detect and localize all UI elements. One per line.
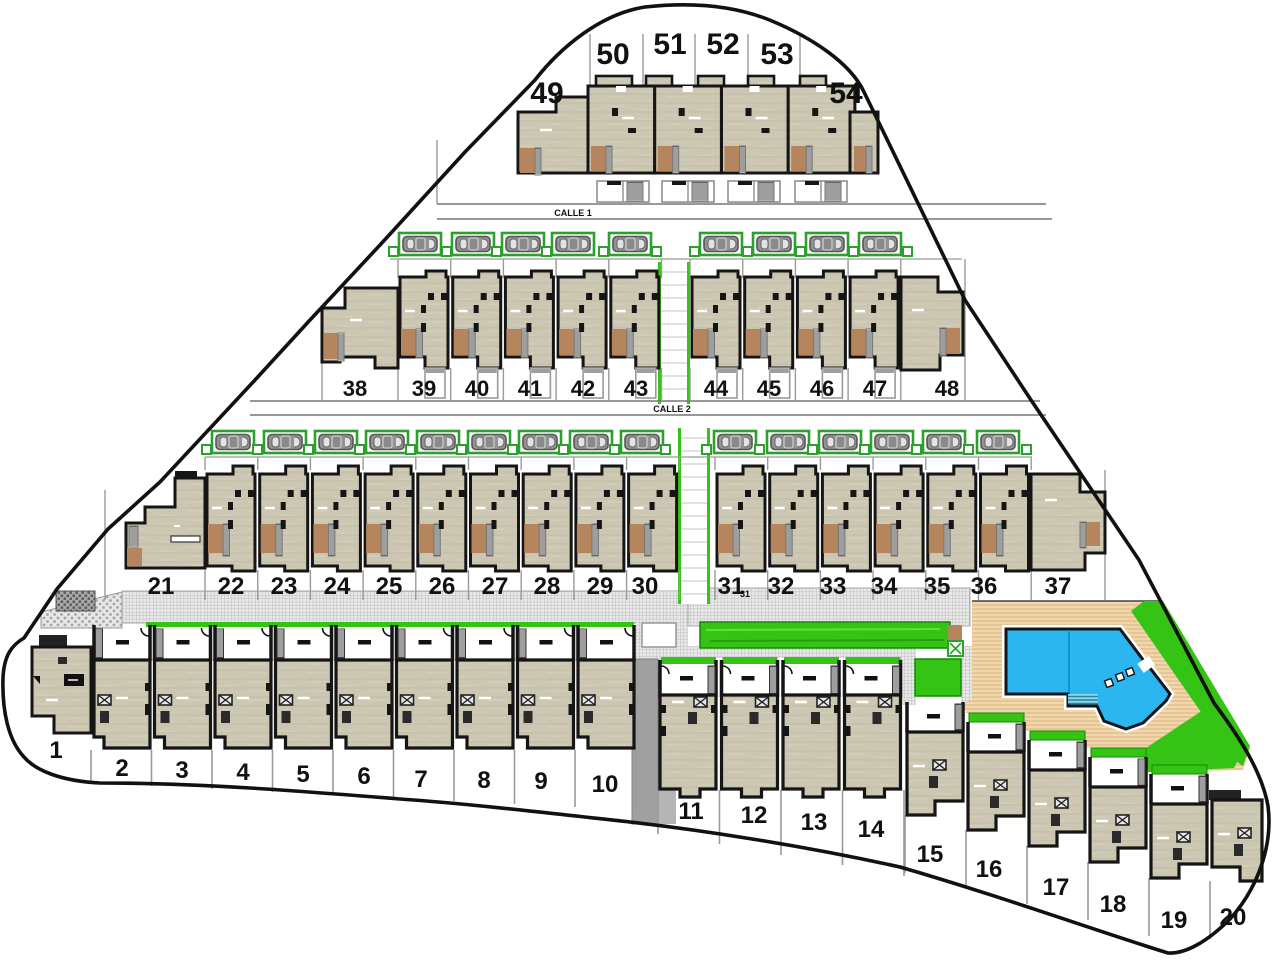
svg-text:44: 44 bbox=[704, 376, 729, 401]
svg-text:23: 23 bbox=[271, 573, 298, 600]
svg-text:53: 53 bbox=[760, 38, 793, 71]
svg-text:26: 26 bbox=[429, 573, 456, 600]
svg-text:27: 27 bbox=[482, 573, 509, 600]
svg-text:50: 50 bbox=[596, 38, 629, 71]
svg-text:2: 2 bbox=[115, 755, 128, 782]
svg-text:21: 21 bbox=[148, 573, 175, 600]
svg-text:6: 6 bbox=[357, 763, 370, 790]
svg-text:31: 31 bbox=[740, 589, 750, 599]
svg-text:35: 35 bbox=[924, 573, 951, 600]
svg-text:48: 48 bbox=[935, 376, 959, 401]
svg-text:32: 32 bbox=[768, 573, 795, 600]
svg-text:12: 12 bbox=[741, 802, 768, 829]
svg-text:16: 16 bbox=[976, 856, 1003, 883]
svg-text:CALLE 1: CALLE 1 bbox=[554, 208, 592, 218]
svg-text:43: 43 bbox=[624, 376, 648, 401]
svg-text:5: 5 bbox=[296, 761, 309, 788]
svg-text:33: 33 bbox=[820, 573, 847, 600]
svg-text:28: 28 bbox=[534, 573, 561, 600]
svg-text:7: 7 bbox=[414, 766, 427, 793]
svg-text:22: 22 bbox=[218, 573, 245, 600]
svg-text:8: 8 bbox=[477, 767, 490, 794]
svg-text:34: 34 bbox=[871, 573, 898, 600]
svg-text:36: 36 bbox=[971, 573, 998, 600]
svg-text:38: 38 bbox=[343, 376, 367, 401]
svg-text:CALLE 2: CALLE 2 bbox=[653, 404, 691, 414]
svg-text:18: 18 bbox=[1100, 891, 1127, 918]
svg-text:3: 3 bbox=[175, 757, 188, 784]
svg-text:19: 19 bbox=[1161, 907, 1188, 934]
svg-text:46: 46 bbox=[810, 376, 834, 401]
svg-text:10: 10 bbox=[592, 771, 619, 798]
svg-text:52: 52 bbox=[706, 28, 739, 61]
svg-text:1: 1 bbox=[49, 737, 62, 764]
svg-text:4: 4 bbox=[236, 759, 250, 786]
svg-text:51: 51 bbox=[653, 28, 686, 61]
svg-text:37: 37 bbox=[1045, 573, 1072, 600]
svg-text:29: 29 bbox=[587, 573, 614, 600]
svg-text:47: 47 bbox=[863, 376, 887, 401]
svg-text:41: 41 bbox=[518, 376, 542, 401]
svg-text:24: 24 bbox=[324, 573, 351, 600]
svg-text:39: 39 bbox=[412, 376, 436, 401]
svg-text:11: 11 bbox=[678, 798, 703, 825]
svg-text:42: 42 bbox=[571, 376, 595, 401]
svg-text:15: 15 bbox=[917, 841, 944, 868]
svg-text:17: 17 bbox=[1043, 874, 1070, 901]
svg-text:45: 45 bbox=[757, 376, 781, 401]
svg-text:13: 13 bbox=[801, 809, 828, 836]
svg-text:14: 14 bbox=[858, 816, 885, 843]
svg-text:9: 9 bbox=[534, 768, 547, 795]
svg-text:30: 30 bbox=[632, 573, 659, 600]
svg-text:25: 25 bbox=[376, 573, 403, 600]
svg-text:40: 40 bbox=[465, 376, 489, 401]
